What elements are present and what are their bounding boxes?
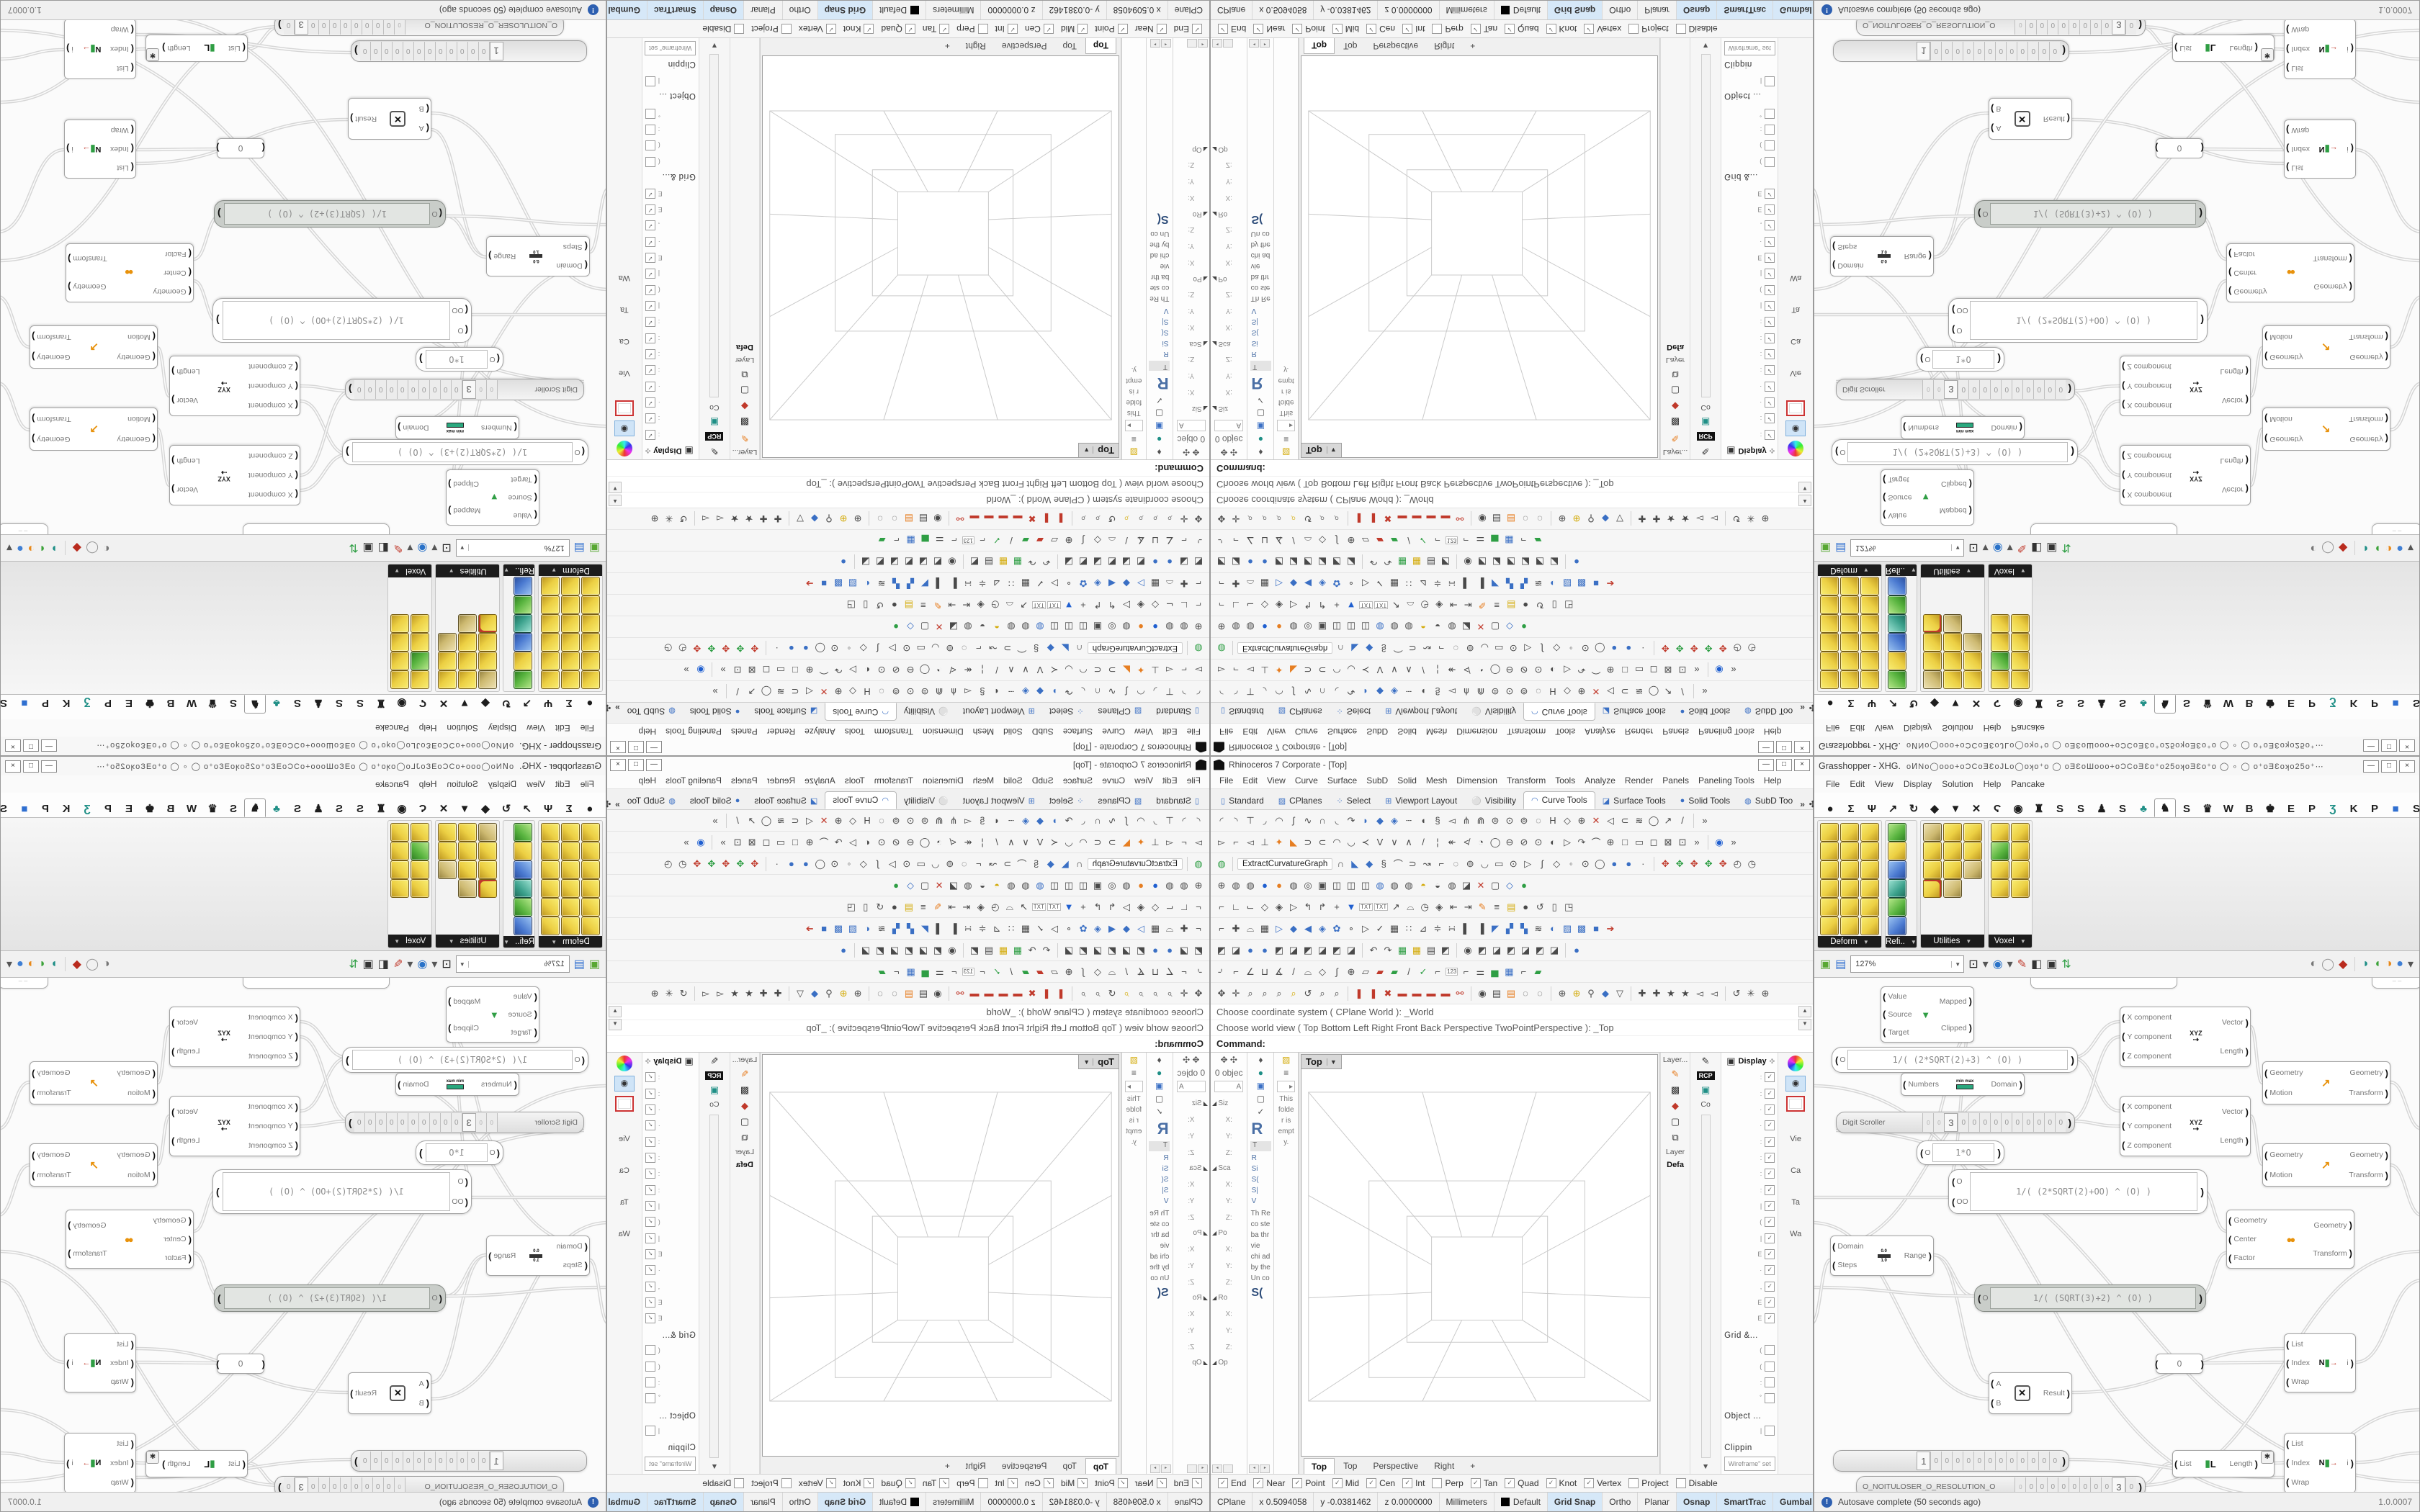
toolbar-icon[interactable]: » [717,837,730,847]
input-port-z-component[interactable]: Z component [247,1140,300,1151]
toolbar-icon[interactable]: ↱ [1316,600,1329,611]
input-port-numbers[interactable]: Numbers [1901,423,1940,433]
toolbar-icon[interactable]: ◩ [1505,557,1518,568]
gh-panel-node[interactable]: 0 [217,138,264,158]
menu-item-analyze[interactable]: Analyze [800,725,840,738]
osnap-checkbox-tan[interactable]: ✓ [939,24,949,34]
component-icon[interactable] [514,842,532,860]
scroller-digit[interactable]: 0 [330,1477,341,1492]
output-port-geometry[interactable]: Geometry [2347,352,2390,363]
gh-category-tab-5[interactable]: ↻ [496,695,516,712]
toolbar-icon[interactable]: ◈ [1273,600,1286,611]
viewport-tab-item[interactable]: + [938,1458,957,1474]
toolbar-icon[interactable]: ✥ [1716,643,1729,654]
ribbon-group-label[interactable]: Deform▼ [539,564,602,576]
input-port-target[interactable]: Target [506,474,539,485]
toolbar-icon[interactable]: ⊕ [648,988,661,999]
scroller-digit[interactable]: 3 [1944,1113,1958,1132]
toolbar-icon[interactable]: ◇ [1091,535,1104,546]
toolbar-icon[interactable]: ◠ [1077,665,1090,676]
toolbar-icon[interactable]: ⌒ [1590,835,1603,849]
display-checkbox-checked[interactable]: ✓ [1765,237,1775,247]
toolbar-icon[interactable]: ∨ [1388,665,1401,676]
gh-category-tab-7[interactable]: ▼ [454,801,475,817]
toolbar-icon[interactable]: ▯ [1548,600,1561,611]
display-checkbox-checked[interactable]: ✓ [1765,1072,1775,1082]
component-icon[interactable] [561,898,580,917]
toolbar-icon[interactable]: ≡ [1490,901,1503,912]
display-checkbox-checked[interactable]: ✓ [645,413,655,423]
scroller-digit[interactable]: 0 [2101,1477,2112,1492]
folder-icon[interactable]: ▨ [1130,447,1138,457]
toolbar-icon[interactable]: ⊚ [889,815,902,827]
component-icon[interactable] [1820,860,1839,879]
toolbar-icon[interactable]: ⊃ [1301,665,1314,676]
help-link[interactable]: S| [1252,318,1270,325]
toolbar-icon[interactable]: ʃ [1287,686,1300,697]
toolbar-icon[interactable]: ✓ [1034,578,1047,590]
toolbar-icon[interactable]: ✕ [933,621,946,633]
toolbar-icon[interactable]: ⋔ [947,815,960,827]
component-icon[interactable] [458,842,477,860]
help-link[interactable]: S( [1252,1176,1270,1184]
gh-category-tab-1[interactable]: ● [1820,801,1840,817]
toolbar-icon[interactable]: ❚ [1367,513,1380,525]
toolbar-icon[interactable]: ◅ [699,513,712,525]
scroller-digit[interactable]: 0 [2125,20,2136,35]
toolbar-icon[interactable]: ▻ [1215,665,1228,676]
toolbar-icon[interactable]: V [1373,665,1386,675]
toolbar-icon[interactable]: ◌ [1519,988,1532,999]
gh-node[interactable]: GeometryMotion↗GeometryTransform [2262,1061,2390,1104]
side-tab-wa[interactable]: Wa [1790,274,1801,282]
scroller-digit[interactable]: 0 [403,42,414,60]
toolbar-icon[interactable]: ◪ [1490,557,1503,568]
gh-node[interactable]: ListIndexWrapN▮→i [64,1333,136,1392]
gh-category-tab-6[interactable]: ◆ [475,800,496,817]
help-panel-icon[interactable]: ✓ [1156,395,1163,405]
osnap-checkbox-perp[interactable] [1432,24,1442,34]
output-port-length[interactable]: Length [2219,1046,2250,1057]
output-port-geometry[interactable]: Geometry [2311,1220,2354,1230]
gh-category-tab-17[interactable]: ♞ [2154,695,2176,714]
layer-panel[interactable]: Layer...✎▩◆▢⧉LayerDefa [1660,1053,1690,1474]
toolbar-icon[interactable]: ⌕ [1120,513,1133,525]
output-port-transform[interactable]: Transform [30,1170,73,1181]
menu-item-view[interactable]: View [1130,774,1157,787]
toolbar-icon[interactable]: ● [1149,945,1162,955]
toolbar-icon[interactable]: ʃ [1120,686,1133,697]
toolbar-icon[interactable]: ▼ [1345,600,1358,611]
toolbar-icon[interactable]: ● [1149,621,1162,632]
toolbar-icon[interactable]: ⌓ [1404,600,1417,611]
toolbar-icon[interactable]: ◆ [1363,643,1376,654]
gh-expression-node[interactable]: O1/( (2*SQRT(2)+3) ^ (O) ) [342,1047,588,1073]
toolbar-icon[interactable]: ∘ [1345,578,1358,590]
component-icon[interactable] [1840,670,1859,689]
gh-menu-item-display[interactable]: Display [1899,721,1936,734]
menu-item-view[interactable]: View [1263,774,1290,787]
input-port-y-component[interactable]: Y component [247,470,300,481]
scroller-digit[interactable]: 3 [295,20,308,35]
gh-node[interactable]: DomainSteps0.01.0Range [1830,1236,1934,1276]
toolbar-icon[interactable]: ✥ [1702,858,1715,870]
toolbar-icon[interactable]: ◆ [808,513,821,525]
component-icon[interactable] [561,595,580,614]
toolbar-icon[interactable]: ◍ [1019,621,1032,633]
toolbar-icon[interactable]: ◯ [760,815,773,827]
scroller-digit[interactable]: 0 [430,380,441,399]
toolbar-icon[interactable]: ◷ [989,901,1002,913]
display-checkbox-unchecked[interactable] [645,76,655,86]
toolbar-icon[interactable]: ◍ [1034,621,1047,633]
menu-item-analyze[interactable]: Analyze [1580,774,1620,787]
gh-category-tab-2[interactable]: Σ [559,801,579,817]
gh-node[interactable]: ListIndexWrapN▮→i [64,120,136,179]
input-port-o[interactable]: O [1920,354,1931,365]
toolbar-icon[interactable]: ❚ [1054,513,1067,525]
toolbar-icon[interactable]: ❚ [1054,988,1067,999]
pencil-icon[interactable]: ✎ [710,1056,718,1067]
scroller-digit[interactable]: 0 [2012,380,2022,399]
toolbar-icon[interactable]: ◇ [1149,600,1162,611]
toolbar-icon[interactable]: ▷ [846,665,859,676]
toolbar-icon[interactable]: ✥ [1688,858,1700,870]
help-panel-icon[interactable]: ● [1157,1068,1162,1078]
toolbar-icon[interactable]: ▦ [1019,923,1032,935]
scroller-digit[interactable]: 0 [1968,1113,1979,1132]
scroller-digit[interactable]: 0 [1995,1452,2006,1470]
toolbar-icon[interactable]: ◆ [1363,858,1376,870]
toolbar-icon[interactable]: ▅ [1488,535,1501,546]
display-checkbox-unchecked[interactable] [645,109,655,119]
component-icon[interactable] [390,652,409,670]
side-tab-ca[interactable]: Ca [1791,337,1801,346]
component-icon[interactable] [1840,614,1859,633]
component-icon[interactable] [1963,652,1982,670]
gh-category-tab-26[interactable]: K [2344,801,2364,817]
input-port-wrap[interactable]: Wrap [109,24,135,35]
toolbar-icon[interactable]: ⊙ [828,643,841,654]
minimize-button[interactable]: — [2363,760,2379,773]
command-scrollbar[interactable]: ▲▼ [609,482,622,506]
toolbar-icon[interactable]: ʃ [1287,815,1300,826]
layer-name-default[interactable]: Defa [736,343,753,351]
zoom-level-combo[interactable]: 127%▼ [456,955,570,973]
help-panel-icon[interactable]: ▢ [1257,408,1265,418]
menu-item-render[interactable]: Render [763,725,799,738]
toolbar-icon[interactable]: ◩ [1215,557,1228,568]
osnap-checkbox-int[interactable]: ✓ [1402,24,1412,34]
help-panel-icon[interactable]: ✓ [1257,1107,1264,1117]
side-tabs-panel[interactable]: ◉VieCaTaWa [607,1053,642,1474]
ribbon-group-label[interactable]: Refi..▼ [1886,564,1917,576]
help-link[interactable]: R [1252,1154,1270,1162]
toolbar-icon[interactable]: ∟ [1178,901,1191,912]
toolbar-icon[interactable]: » [1698,686,1711,697]
gh-menu-item-file[interactable]: File [1821,721,1844,734]
output-port-i[interactable]: i [2345,44,2355,55]
toolbar-icon[interactable]: ▷ [1287,901,1300,913]
toolbar-icon[interactable]: ◪ [917,945,930,956]
toolbar-icon[interactable]: ⊃ [1406,858,1419,870]
menu-item-render[interactable]: Render [763,774,799,787]
viewport-tab-perspective[interactable]: Perspective [995,1458,1054,1474]
input-port-source[interactable]: Source [1881,492,1914,503]
component-icon[interactable] [1943,652,1962,670]
toolbar-icon[interactable]: ∿ [1106,686,1119,698]
toolbar-icon[interactable]: ◉ [1476,513,1489,525]
toolbar-icon[interactable]: ◞ [1149,815,1162,827]
toolbar-icon[interactable]: ⌕ [1134,988,1147,999]
toolbar-icon[interactable]: ◷ [1745,643,1758,654]
toolbar-tab-viewport-layout[interactable]: ⊞Viewport Layout [956,703,1042,719]
toolbar-icon[interactable]: ◈ [1316,578,1329,590]
scroller-digit[interactable]: 0 [2079,20,2090,35]
help-panel-icon[interactable]: ♦ [1157,447,1162,457]
gh-category-tab-22[interactable]: ♚ [2260,695,2280,712]
gh-category-tab-25[interactable]: Ʒ [2323,695,2343,711]
toolbar-icon[interactable]: ∫ [1330,535,1343,546]
camera-icon-selected[interactable]: ◉ [614,420,635,436]
gh-category-tab-11[interactable]: ♜ [2029,695,2049,712]
side-tabs-panel[interactable]: ◉VieCaTaWa [1778,38,1813,459]
toolbar-icon[interactable]: ≑ [976,578,989,590]
component-icon[interactable] [541,670,560,689]
scroller-digit[interactable]: 0 [351,1477,362,1492]
toolbar-icon[interactable]: ◔ [1474,837,1487,847]
toolbar-icon[interactable]: ● [1519,600,1532,611]
toolbar-icon[interactable]: ⊘ [1518,837,1531,848]
component-icon[interactable] [1888,614,1906,633]
layer-tool-icon[interactable]: ▩ [740,1084,749,1096]
toolbar-tab-select[interactable]: ⁘Select [1042,793,1091,809]
toolbar-tab-standard[interactable]: ▯Standard [1149,703,1206,719]
toolbar-icon[interactable]: ∺ [962,923,974,935]
menu-item-curve[interactable]: Curve [1098,774,1129,787]
layer-tool-icon[interactable]: ✎ [741,432,749,444]
toolbar-icon[interactable]: ◯ [1593,643,1606,654]
toolbar-icon[interactable]: ◪ [1120,557,1133,568]
output-port-i[interactable]: i [65,1358,75,1369]
toolbar-icon[interactable]: ⊿ [1417,923,1430,935]
canvas-toolbar-icon[interactable]: ▾ [1983,957,1989,971]
component-icon[interactable] [2011,652,2030,670]
toolbar-icon[interactable]: ⌒ [1391,642,1404,655]
canvas-toolbar-icon[interactable]: ▾ [2408,541,2414,555]
viewport-top[interactable]: Top▼ [1301,1054,1658,1457]
toolbar-icon[interactable]: ✥ [1673,643,1686,654]
toolbar-icon[interactable]: ◩ [968,945,981,956]
expression-star-button[interactable]: ✱ [146,48,159,61]
gh-menu-item-file[interactable]: File [576,778,599,791]
toolbar-icon[interactable]: ∿ [1301,815,1314,827]
scroller-digit[interactable]: 0 [487,380,498,399]
help-panel[interactable]: ♦●▣▢✓RTRSiS(S|VTh Re co ste ba thr vie c… [1146,1053,1173,1474]
display-checkbox-checked[interactable]: ✓ [645,1089,655,1099]
component-icon[interactable] [458,670,477,689]
layer-tool-icon[interactable]: ◆ [741,400,748,412]
menu-item-subd[interactable]: SubD [1028,774,1058,787]
menu-item-transform[interactable]: Transform [1502,725,1550,738]
toolbar-icon[interactable]: ↶ [1040,557,1053,568]
toolbar-icon[interactable]: □ [1618,665,1631,675]
toolbar-icon[interactable]: ✥ [1659,858,1672,870]
toolbar-icon[interactable]: ◆ [1373,815,1386,827]
component-icon[interactable] [541,652,560,670]
toolbar-tab-select[interactable]: ⁘Select [1330,703,1379,719]
gh-expression-node[interactable]: OOO1/( (2*SQRT(2)+OO) ^ (O) ) [212,298,472,343]
toolbar-icon[interactable]: ◩ [1533,945,1546,956]
gh-category-tab-23[interactable]: E [119,801,139,817]
toolbar-icon[interactable]: ★ [1664,513,1677,525]
canvas-toolbar-icon[interactable]: ▾ [407,541,413,555]
gh-node[interactable]: Numbersmin maxDomain [1901,416,2025,439]
toolbar-icon[interactable]: ▽ [794,513,807,525]
component-icon[interactable] [581,917,600,935]
input-port-wrap[interactable]: Wrap [2285,1377,2311,1387]
gh-category-tab-9[interactable]: Ϛ [413,695,433,711]
toolbar-icon[interactable]: ⊚ [944,643,956,654]
toolbar-icon[interactable]: ⊕ [1345,966,1358,978]
minimize-button[interactable]: — [646,759,662,771]
canvas-toolbar-icon[interactable]: ◑ [2385,958,2393,971]
toolbar-icon[interactable]: ◫ [1330,621,1343,633]
toolbar-icon[interactable]: ∟ [1229,901,1242,912]
toolbar-icon[interactable]: ▚ [1518,923,1531,935]
gh-menu-item-display[interactable]: Display [1899,778,1936,791]
toolbar-icon[interactable]: ↷ [1026,557,1039,568]
toolbar-icon[interactable]: ▣ [1316,880,1329,891]
toolbar-icon[interactable]: ● [889,621,902,632]
boxedit-field[interactable]: A [1214,1081,1243,1092]
toolbar-icon[interactable]: ▯ [859,600,872,611]
display-checkbox-checked[interactable]: ✓ [1765,413,1775,423]
boxedit-section-ro[interactable]: ◢ Ro [1212,1294,1245,1302]
gh-node[interactable]: X componentY componentZ componentXYZ⇢Vec… [169,1096,300,1156]
input-port-target[interactable]: Target [1881,474,1914,485]
toolbar-icon[interactable]: ⚌ [933,535,946,546]
toolbar-icon[interactable]: ⌕ [1244,513,1257,525]
toolbar-icon[interactable]: ⌓ [1301,535,1314,546]
osnap-checkbox-int[interactable]: ✓ [1008,1478,1018,1488]
menu-item-solid[interactable]: Solid [1393,725,1421,738]
display-checkbox-checked[interactable]: ✓ [1765,365,1775,375]
toolbar-icon[interactable]: ◍ [1402,880,1415,891]
gh-node[interactable]: GeometryCenterFactor●●GeometryTransform [2226,243,2354,302]
toolbar-icon[interactable]: ≑ [976,923,989,935]
component-icon[interactable] [478,860,497,879]
hamburger-icon[interactable]: ≡ [1283,1068,1289,1078]
gear-icon[interactable]: ✣ [645,1058,651,1066]
toolbar-icon[interactable]: ◣ [1059,858,1072,870]
toolbar-icon[interactable]: ◟ [1077,815,1090,827]
toolbar-icon[interactable]: ▻ [1192,837,1205,848]
menu-item-dimension[interactable]: Dimension [918,774,968,787]
toolbar-icon[interactable]: ◷ [989,600,1002,611]
toolbar-icon[interactable]: ◜ [1192,686,1205,698]
osnap-checkbox-quad[interactable]: ✓ [905,24,915,34]
toolbar-icon[interactable]: ↗ [745,686,758,698]
projector-icon[interactable]: ▣ [1701,416,1710,428]
toolbar-icon[interactable]: ⇤ [960,901,973,913]
toolbar-icon[interactable]: ◜ [1215,686,1228,698]
status-grid-snap[interactable]: Grid Snap [1548,1,1603,19]
gh-menu-item-solution[interactable]: Solution [1937,778,1977,791]
input-port-geometry[interactable]: Geometry [2263,352,2304,363]
ribbon-group-label[interactable]: Refi..▼ [1886,936,1917,948]
viewport-tab-top[interactable]: Top [1085,38,1116,54]
toolbar-icon[interactable]: ⌐ [1192,578,1205,589]
toolbar-icon[interactable]: ⊙ [904,815,917,827]
status-millimeters[interactable]: Millimeters [1440,1493,1494,1511]
scroller-digit[interactable]: 0 [2012,1113,2022,1132]
output-port-transform[interactable]: Transform [30,1088,73,1099]
toolbar-icon[interactable]: ✥ [1215,988,1228,999]
toolbar-icon[interactable]: ⌒ [1590,663,1603,677]
toolbar-icon[interactable]: ❚ [1367,988,1380,999]
viewport-tab-top[interactable]: Top [1304,1458,1335,1474]
toolbar-icon[interactable]: ⊂ [789,686,802,698]
menu-item-file[interactable]: File [1215,725,1237,738]
toolbar-icon[interactable]: ◍ [1446,621,1458,633]
display-checkbox-checked[interactable]: ✓ [1765,430,1775,440]
gh-category-tab-10[interactable]: ◉ [2008,695,2028,712]
viewport-tab-item[interactable]: + [938,38,957,54]
component-icon[interactable] [1888,823,1906,842]
toolbar-icon[interactable]: ◩ [1192,557,1205,568]
toolbar-icon[interactable]: ✥ [748,858,761,870]
gh-expression-node[interactable]: O1*O [416,1140,503,1165]
scroller-digit[interactable]: 3 [2112,20,2125,35]
scroller-digit[interactable]: 0 [395,20,405,35]
toolbar-tab-solid-tools[interactable]: ●Solid Tools [1673,793,1737,809]
input-port-z-component[interactable]: Z component [247,1050,300,1061]
toolbar-icon[interactable]: ◩ [1106,557,1119,568]
scroller-digit[interactable]: 0 [354,380,365,399]
toolbar-icon[interactable]: ✦ [1134,665,1147,676]
pencil-icon[interactable]: ✎ [1702,1056,1710,1067]
display-panel[interactable]: ▣Display✣:✓:✓·✓·✓:✓:✓:✓:✓|✓(✓|✓E✓·✓,✓E✓E… [1721,38,1778,459]
toolbar-icon[interactable]: ⊖ [1503,837,1516,848]
toolbar-icon[interactable]: ✿ [1077,923,1090,935]
component-icon[interactable] [1840,595,1859,614]
gh-category-tab-28[interactable]: ■ [2385,695,2406,711]
gh-node-partial[interactable] [243,978,390,989]
toolbar-tab-viewport-layout[interactable]: ⊞Viewport Layout [1378,793,1464,809]
component-icon[interactable] [478,633,497,652]
panel-scrollbar[interactable]: ◂ [1187,1464,1208,1473]
display-checkbox-checked[interactable]: ✓ [645,333,655,343]
toolbar-icon[interactable]: ∿ [1106,815,1119,827]
toolbar-icon[interactable]: ◟ [1330,686,1343,698]
toolbar-icon[interactable]: ✚ [771,988,784,999]
toolbar-icon[interactable]: ⊚ [944,858,956,870]
gh-menu-item-help[interactable]: Help [1979,778,2006,791]
toolbar-icon[interactable]: ∺ [962,578,974,590]
scroller-digit[interactable]: 0 [373,20,384,35]
component-icon[interactable] [2011,614,2030,633]
toolbar-icon[interactable]: ▱ [1359,535,1372,546]
toolbar-icon[interactable]: ↺ [1301,513,1314,525]
menu-item-paneling-tools[interactable]: Paneling Tools [1694,774,1759,787]
scroller-digit[interactable]: 0 [2069,20,2079,35]
output-port-domain[interactable]: Domain [1989,423,2024,433]
scroller-digit[interactable]: 0 [2049,1452,2060,1470]
gh-category-tab-3[interactable]: Ψ [1862,695,1882,711]
viewport-tab-perspective[interactable]: Perspective [1366,1458,1425,1474]
toolbar-icon[interactable]: ■ [817,578,830,589]
